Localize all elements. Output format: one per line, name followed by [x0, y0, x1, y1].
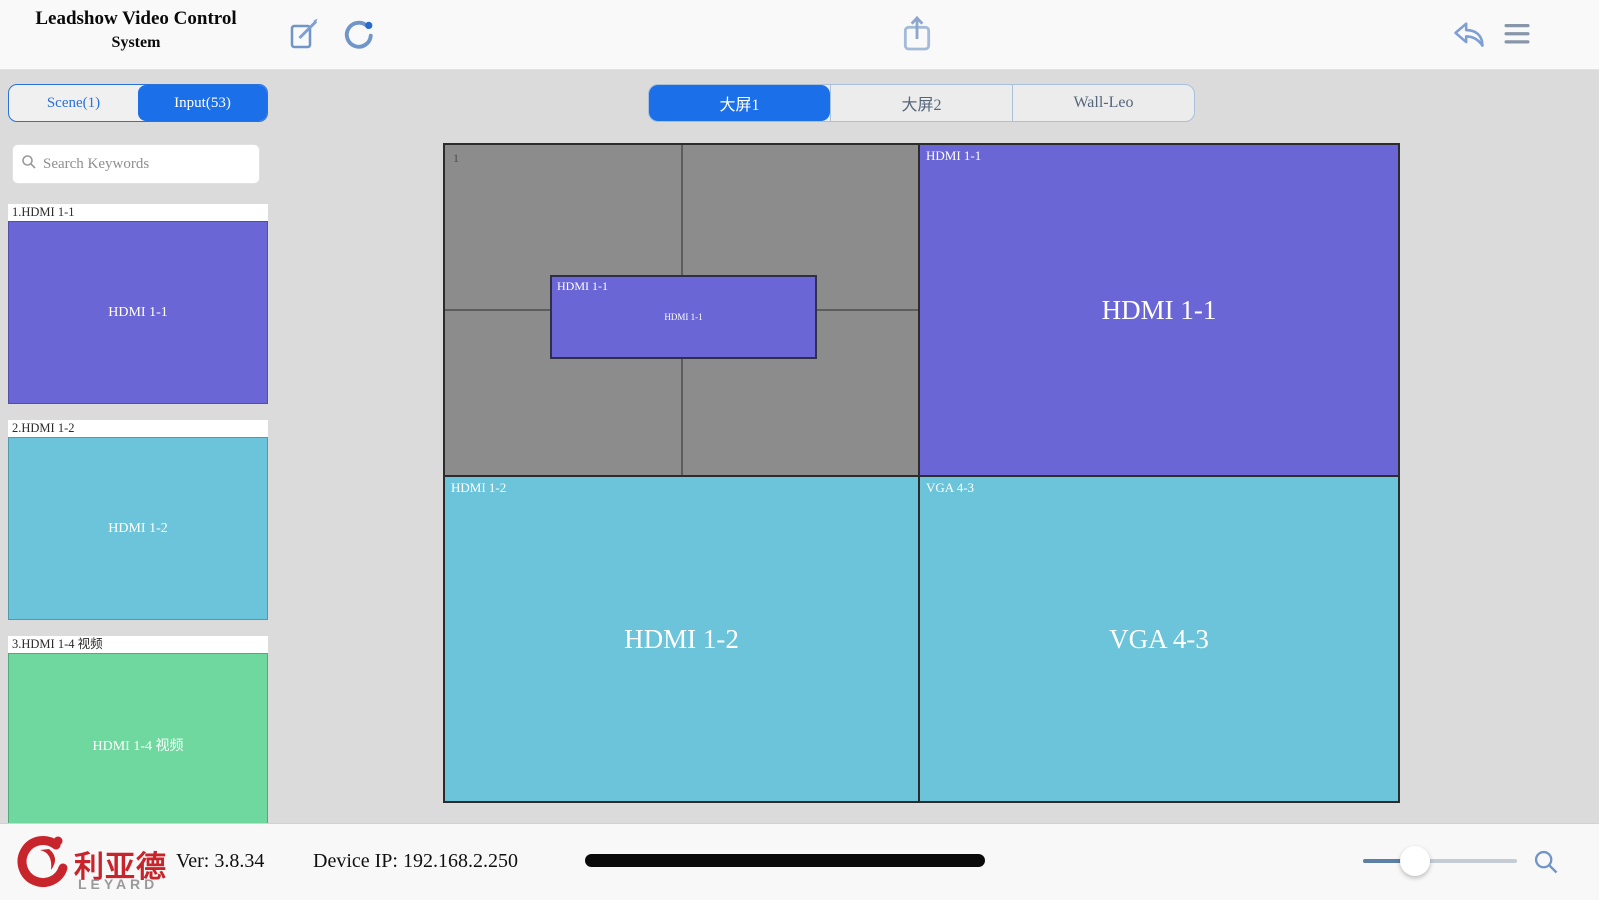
- input-tile-title: HDMI 1-2: [108, 521, 168, 537]
- search-icon: [21, 154, 43, 175]
- edit-icon: [286, 41, 322, 56]
- upload-button[interactable]: [897, 12, 937, 59]
- app-title: Leadshow Video Control System: [0, 8, 272, 52]
- input-tile-hdmi-1-4[interactable]: HDMI 1-4 视频: [8, 653, 268, 823]
- version-label: Ver: 3.8.34: [176, 850, 264, 873]
- menu-icon: [1502, 36, 1532, 51]
- window-corner-label: HDMI 1-1: [557, 279, 608, 294]
- wall-divider-vertical: [918, 145, 920, 801]
- sidebar-tab-group: Scene(1) Input(53): [8, 84, 268, 122]
- app-title-line2: System: [0, 34, 272, 52]
- tab-scene[interactable]: Scene(1): [9, 85, 138, 121]
- status-bar: 利亚德 LEYARD Ver: 3.8.34 Device IP: 192.16…: [0, 823, 1599, 900]
- input-source-list: 1.HDMI 1-1 HDMI 1-1 2.HDMI 1-2 HDMI 1-2 …: [8, 204, 268, 823]
- input-item-label: 2.HDMI 1-2: [8, 420, 268, 437]
- main-area: Scene(1) Input(53) 1.HDMI 1-1 HDMI 1-1 2…: [0, 70, 1599, 823]
- input-tile-title: HDMI 1-1: [108, 305, 168, 321]
- zoom-slider[interactable]: [1363, 844, 1517, 878]
- zoom-button[interactable]: [1532, 848, 1560, 879]
- magnifier-icon: [1532, 864, 1560, 879]
- window-title: VGA 4-3: [1109, 624, 1209, 655]
- floating-window-hdmi-1-1[interactable]: HDMI 1-1 HDMI 1-1: [550, 275, 817, 359]
- window-vga-4-3[interactable]: VGA 4-3 VGA 4-3: [920, 477, 1398, 801]
- top-toolbar: Leadshow Video Control System: [0, 0, 1599, 70]
- screen-number: 1: [453, 151, 459, 166]
- window-hdmi-1-2[interactable]: HDMI 1-2 HDMI 1-2: [445, 477, 918, 801]
- window-corner-label: VGA 4-3: [926, 480, 974, 496]
- leyard-logo: 利亚德 LEYARD: [12, 832, 177, 894]
- window-title: HDMI 1-1: [1102, 295, 1217, 326]
- video-wall-canvas: 1 HDMI 1-1 HDMI 1-1 HDMI 1-2 HDMI 1-2 VG…: [443, 143, 1400, 803]
- window-corner-label: HDMI 1-2: [451, 480, 506, 496]
- search-box: [12, 144, 260, 184]
- window-title: HDMI 1-1: [664, 312, 702, 322]
- app-title-line1: Leadshow Video Control: [0, 8, 272, 30]
- refresh-button[interactable]: [340, 17, 376, 56]
- window-title: HDMI 1-2: [624, 624, 739, 655]
- tab-wall-1[interactable]: 大屏1: [649, 85, 830, 121]
- tab-input[interactable]: Input(53): [138, 85, 267, 121]
- input-tile-hdmi-1-2[interactable]: HDMI 1-2: [8, 437, 268, 620]
- refresh-icon: [340, 41, 376, 56]
- input-item-label: 3.HDMI 1-4 视频: [8, 636, 268, 653]
- tab-wall-leo[interactable]: Wall-Leo: [1012, 85, 1194, 121]
- input-tile-hdmi-1-1[interactable]: HDMI 1-1: [8, 221, 268, 404]
- app-window: Leadshow Video Control System: [0, 0, 1599, 900]
- tab-wall-2[interactable]: 大屏2: [830, 85, 1012, 121]
- list-item: 2.HDMI 1-2 HDMI 1-2: [8, 420, 268, 620]
- input-tile-title: HDMI 1-4 视频: [93, 735, 184, 755]
- leyard-logo-en: LEYARD: [78, 876, 158, 892]
- undo-button[interactable]: [1452, 20, 1486, 53]
- upload-icon: [897, 44, 937, 59]
- wall-divider-horizontal: [445, 475, 1398, 477]
- search-input[interactable]: [43, 156, 251, 173]
- wall-tab-group: 大屏1 大屏2 Wall-Leo: [648, 84, 1195, 122]
- list-item: 3.HDMI 1-4 视频 HDMI 1-4 视频: [8, 636, 268, 823]
- zoom-slider-handle[interactable]: [1400, 846, 1430, 876]
- undo-icon: [1452, 38, 1486, 53]
- list-item: 1.HDMI 1-1 HDMI 1-1: [8, 204, 268, 404]
- device-ip-label: Device IP: 192.168.2.250: [313, 850, 518, 873]
- horizontal-scrollbar[interactable]: [585, 854, 985, 867]
- window-corner-label: HDMI 1-1: [926, 148, 981, 164]
- input-item-label: 1.HDMI 1-1: [8, 204, 268, 221]
- menu-button[interactable]: [1502, 20, 1532, 51]
- window-hdmi-1-1[interactable]: HDMI 1-1 HDMI 1-1: [920, 145, 1398, 475]
- edit-button[interactable]: [286, 17, 322, 56]
